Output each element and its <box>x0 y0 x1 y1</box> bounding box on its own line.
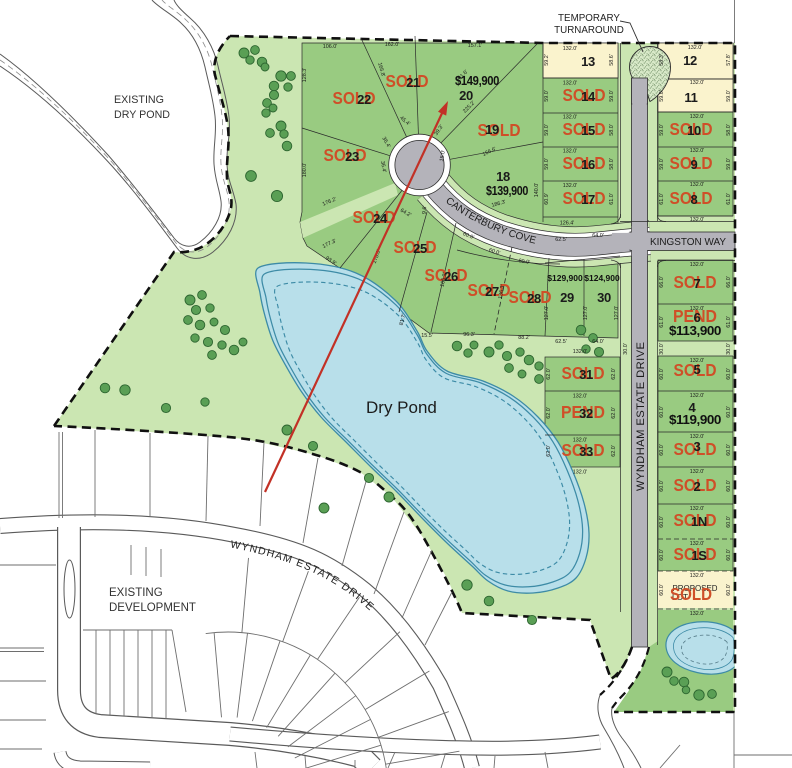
svg-text:29: 29 <box>560 290 574 305</box>
svg-text:16: 16 <box>581 157 595 172</box>
svg-text:64.0': 64.0' <box>592 233 604 239</box>
svg-text:132.0': 132.0' <box>690 611 705 617</box>
svg-text:127.0': 127.0' <box>544 306 550 321</box>
svg-text:28: 28 <box>527 291 541 306</box>
svg-text:30.0': 30.0' <box>726 343 732 355</box>
svg-text:60.0': 60.0' <box>726 549 732 561</box>
svg-text:106.0': 106.0' <box>323 44 338 50</box>
svg-text:66.0': 66.0' <box>726 276 732 288</box>
svg-text:1S: 1S <box>691 548 707 563</box>
svg-text:132.0': 132.0' <box>690 80 705 86</box>
svg-text:TURNAROUND: TURNAROUND <box>554 25 624 36</box>
svg-text:132.0': 132.0' <box>690 114 705 120</box>
svg-text:59.0': 59.0' <box>544 90 550 102</box>
svg-text:132.0': 132.0' <box>563 115 578 121</box>
svg-text:58.0': 58.0' <box>726 124 732 136</box>
svg-text:126.4': 126.4' <box>560 221 575 227</box>
svg-text:60.0': 60.0' <box>659 406 665 418</box>
svg-text:132.0': 132.0' <box>690 506 705 512</box>
svg-text:60.0': 60.0' <box>659 549 665 561</box>
svg-text:59.0': 59.0' <box>659 90 665 102</box>
svg-text:1N: 1N <box>691 514 707 529</box>
svg-text:57.8': 57.8' <box>726 54 732 66</box>
svg-text:33: 33 <box>579 444 593 459</box>
svg-text:62.0': 62.0' <box>611 407 617 419</box>
svg-text:24: 24 <box>373 211 388 226</box>
svg-text:27: 27 <box>485 284 499 299</box>
svg-text:132.0': 132.0' <box>690 469 705 475</box>
svg-text:60.0': 60.0' <box>726 516 732 528</box>
svg-text:SOLD: SOLD <box>670 584 712 604</box>
svg-text:59.0': 59.0' <box>659 124 665 136</box>
svg-text:TEMPORARY: TEMPORARY <box>558 13 620 24</box>
svg-text:$129,900: $129,900 <box>547 273 583 283</box>
svg-text:Dry Pond: Dry Pond <box>366 398 437 417</box>
svg-text:180.0': 180.0' <box>302 163 308 178</box>
svg-text:7: 7 <box>694 276 701 291</box>
svg-text:60.0': 60.0' <box>726 480 732 492</box>
svg-text:KINGSTON WAY: KINGSTON WAY <box>650 237 726 248</box>
svg-text:60.0': 60.0' <box>659 480 665 492</box>
svg-text:58.0': 58.0' <box>609 124 615 136</box>
svg-text:62.0': 62.0' <box>546 368 552 380</box>
svg-text:132.0': 132.0' <box>690 148 705 154</box>
svg-text:157.1': 157.1' <box>468 43 483 49</box>
svg-text:62.5': 62.5' <box>555 339 567 345</box>
svg-text:132.0': 132.0' <box>690 182 705 188</box>
svg-text:59.0': 59.0' <box>544 158 550 170</box>
svg-text:EXISTING: EXISTING <box>109 587 163 599</box>
svg-text:132.0': 132.0' <box>690 393 705 399</box>
svg-text:132.0': 132.0' <box>690 573 705 579</box>
svg-text:62.5': 62.5' <box>555 237 567 243</box>
svg-text:88.2': 88.2' <box>518 335 530 341</box>
svg-text:132.0': 132.0' <box>573 394 588 400</box>
svg-text:WYNDHAM ESTATE DRIVE: WYNDHAM ESTATE DRIVE <box>635 342 647 491</box>
svg-text:3: 3 <box>694 439 701 454</box>
svg-text:DRY POND: DRY POND <box>114 109 170 121</box>
svg-text:132.0': 132.0' <box>690 434 705 440</box>
svg-text:60.0': 60.0' <box>726 406 732 418</box>
svg-text:12: 12 <box>683 53 697 68</box>
svg-text:DEVELOPMENT: DEVELOPMENT <box>109 602 196 614</box>
svg-text:30.0': 30.0' <box>659 343 665 355</box>
svg-text:15.5': 15.5' <box>421 333 433 339</box>
svg-text:SOLD: SOLD <box>478 120 521 140</box>
svg-text:132.0': 132.0' <box>690 217 705 223</box>
svg-text:132.0': 132.0' <box>573 349 588 355</box>
svg-text:132.0': 132.0' <box>690 262 705 268</box>
svg-text:$139,900: $139,900 <box>486 184 528 198</box>
svg-text:10: 10 <box>687 123 701 138</box>
svg-text:59.0': 59.0' <box>609 90 615 102</box>
svg-text:58.0': 58.0' <box>609 158 615 170</box>
svg-text:132.0': 132.0' <box>573 470 588 476</box>
svg-text:61.0': 61.0' <box>609 193 615 205</box>
svg-text:61.0': 61.0' <box>726 193 732 205</box>
svg-text:66.0': 66.0' <box>659 276 665 288</box>
svg-text:13: 13 <box>581 54 595 69</box>
svg-text:60.0': 60.0' <box>659 584 665 596</box>
svg-text:60.0': 60.0' <box>659 516 665 528</box>
svg-text:132.0': 132.0' <box>690 541 705 547</box>
svg-text:62.0': 62.0' <box>546 407 552 419</box>
svg-text:132.0': 132.0' <box>688 45 703 51</box>
svg-text:60.9': 60.9' <box>544 193 550 205</box>
svg-text:132.0': 132.0' <box>563 149 578 155</box>
svg-text:25: 25 <box>413 241 427 256</box>
svg-text:9.6': 9.6' <box>422 205 429 214</box>
svg-text:127.0': 127.0' <box>583 306 589 321</box>
svg-text:61.0': 61.0' <box>659 193 665 205</box>
svg-text:31: 31 <box>579 367 593 382</box>
svg-text:127.0': 127.0' <box>614 306 620 321</box>
svg-text:132.0': 132.0' <box>690 358 705 364</box>
svg-text:30.0': 30.0' <box>623 343 629 355</box>
svg-text:132.0': 132.0' <box>563 46 578 52</box>
svg-text:19: 19 <box>485 122 499 137</box>
svg-text:2: 2 <box>694 479 701 494</box>
svg-text:6: 6 <box>694 310 701 325</box>
svg-text:60.0': 60.0' <box>726 444 732 456</box>
svg-text:60.0': 60.0' <box>659 444 665 456</box>
svg-text:140.0': 140.0' <box>534 183 540 198</box>
svg-text:132.0': 132.0' <box>573 438 588 444</box>
svg-text:62.0': 62.0' <box>611 368 617 380</box>
svg-text:132.0': 132.0' <box>563 81 578 87</box>
svg-text:17: 17 <box>581 192 595 207</box>
svg-text:59.2': 59.2' <box>544 54 550 66</box>
svg-text:60.0': 60.0' <box>659 368 665 380</box>
svg-text:61.0': 61.0' <box>726 316 732 328</box>
svg-text:132.0': 132.0' <box>563 183 578 189</box>
svg-text:60.0': 60.0' <box>726 368 732 380</box>
svg-text:32: 32 <box>579 406 593 421</box>
svg-text:59.0': 59.0' <box>726 90 732 102</box>
svg-text:59.0': 59.0' <box>726 158 732 170</box>
svg-text:$119,900: $119,900 <box>669 413 721 427</box>
svg-text:11: 11 <box>684 90 697 105</box>
svg-text:60.0': 60.0' <box>726 584 732 596</box>
svg-text:9: 9 <box>691 157 698 172</box>
svg-text:5: 5 <box>694 362 701 377</box>
svg-text:21: 21 <box>406 75 420 90</box>
svg-text:23: 23 <box>345 149 359 164</box>
svg-text:$113,900: $113,900 <box>669 324 721 338</box>
svg-text:22: 22 <box>357 92 371 107</box>
svg-text:58.6': 58.6' <box>609 54 615 66</box>
svg-text:96.3': 96.3' <box>463 332 475 338</box>
svg-text:128.3': 128.3' <box>302 68 308 83</box>
svg-text:30: 30 <box>597 290 611 305</box>
svg-text:132.0': 132.0' <box>690 306 705 312</box>
svg-text:EXISTING: EXISTING <box>114 94 164 106</box>
svg-text:15: 15 <box>581 123 595 138</box>
svg-text:62.0': 62.0' <box>546 445 552 457</box>
svg-text:61.0': 61.0' <box>659 316 665 328</box>
svg-text:59.0': 59.0' <box>659 158 665 170</box>
svg-text:14: 14 <box>581 89 596 104</box>
svg-text:64.0': 64.0' <box>592 339 604 345</box>
svg-text:59.0': 59.0' <box>544 124 550 136</box>
svg-text:8: 8 <box>691 192 698 207</box>
svg-text:62.0': 62.0' <box>611 445 617 457</box>
svg-text:162.0': 162.0' <box>385 42 400 48</box>
svg-text:58.3': 58.3' <box>659 54 665 66</box>
svg-text:$124,900: $124,900 <box>584 273 620 283</box>
svg-text:18: 18 <box>496 169 510 184</box>
